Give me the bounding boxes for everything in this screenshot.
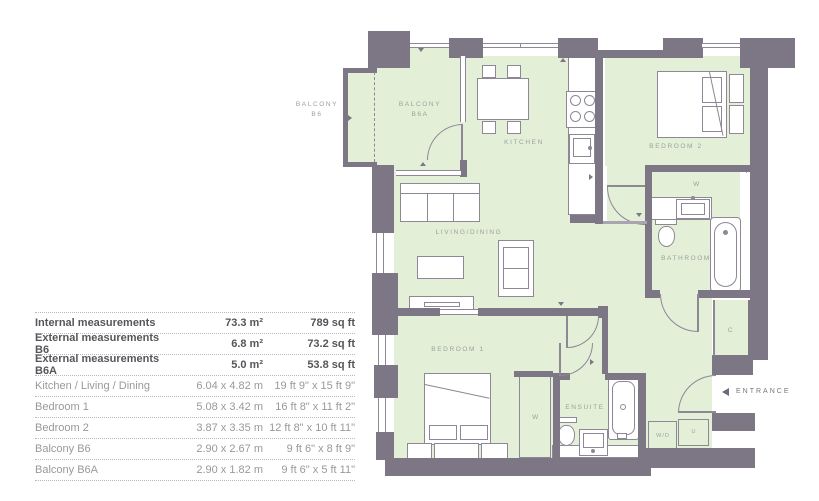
ensuite-toilet-bowl bbox=[558, 425, 575, 446]
kitchen-label: KITCHEN bbox=[504, 139, 544, 146]
bathroom-label: BATHROOM bbox=[661, 255, 711, 262]
marker-arrow bbox=[348, 115, 352, 121]
wall bbox=[374, 365, 398, 398]
wardrobe2-label: W bbox=[693, 181, 701, 188]
measurements-table: Internal measurements 73.3 m² 789 sq ft … bbox=[35, 312, 355, 481]
sofa bbox=[400, 183, 480, 222]
burner bbox=[570, 95, 581, 106]
marker-arrow bbox=[560, 58, 566, 62]
row-metric: 73.3 m² bbox=[171, 317, 263, 329]
row-metric: 2.90 x 1.82 m bbox=[171, 464, 263, 476]
wall bbox=[558, 38, 598, 58]
closet-label: C bbox=[728, 327, 734, 334]
marker-arrow bbox=[636, 213, 642, 217]
floorplan-page: BALCONY B6 BALCONY B6A KITCHEN BEDROOM 2… bbox=[0, 0, 819, 501]
window bbox=[410, 43, 449, 48]
row-imperial: 12 ft 8" x 10 ft 11" bbox=[263, 422, 355, 434]
wall bbox=[663, 38, 703, 58]
row-imperial: 19 ft 9" x 15 ft 9" bbox=[263, 380, 355, 392]
burner bbox=[584, 95, 595, 106]
balcony-wall bbox=[343, 68, 377, 73]
balcony-b6-label: BALCONY bbox=[296, 101, 338, 108]
utility-label: U bbox=[692, 429, 697, 435]
marker-arrow bbox=[590, 359, 594, 365]
wall bbox=[698, 290, 753, 298]
balcony-division-dashed-line bbox=[374, 72, 375, 162]
row-metric: 3.87 x 3.35 m bbox=[171, 422, 263, 434]
entrance-label: ENTRANCE bbox=[736, 388, 791, 395]
balcony-wall bbox=[343, 162, 377, 167]
row-label: External measurements B6A bbox=[35, 353, 171, 377]
wall bbox=[390, 308, 440, 316]
table-row: Balcony B6A 2.90 x 1.82 m 9 ft 6" x 5 ft… bbox=[35, 460, 355, 481]
sofa-cushion-line bbox=[453, 194, 454, 221]
ensuite-sink-basin bbox=[583, 433, 604, 448]
ensuite-tap bbox=[591, 449, 595, 453]
row-metric: 5.08 x 3.42 m bbox=[171, 401, 263, 413]
kitchen-tap bbox=[588, 146, 592, 150]
bed2-nightstand bbox=[729, 74, 744, 103]
wall bbox=[478, 308, 598, 316]
bedroom1-label: BEDROOM 1 bbox=[431, 346, 484, 353]
bedroom2-label: BEDROOM 2 bbox=[649, 143, 702, 150]
bed1-headboard bbox=[434, 443, 479, 459]
row-imperial: 9 ft 6" x 5 ft 11" bbox=[263, 464, 355, 476]
balcony-b6-label-2: B6 bbox=[311, 111, 322, 118]
wall bbox=[598, 50, 665, 58]
dining-table bbox=[477, 78, 529, 120]
table-row: Bedroom 1 5.08 x 3.42 m 16 ft 8" x 11 ft… bbox=[35, 397, 355, 418]
washer-dryer-label: W/D bbox=[656, 433, 670, 439]
row-label: Kitchen / Living / Dining bbox=[35, 380, 171, 392]
wall bbox=[645, 448, 755, 468]
wall bbox=[595, 56, 603, 224]
marker-arrow bbox=[418, 48, 424, 52]
marker-arrow bbox=[420, 162, 426, 166]
row-label: Bedroom 2 bbox=[35, 422, 171, 434]
sofa-cushion-line bbox=[427, 194, 428, 221]
row-imperial: 73.2 sq ft bbox=[263, 338, 355, 350]
table-row: External measurements B6A 5.0 m² 53.8 sq… bbox=[35, 355, 355, 376]
table-row: Balcony B6 2.90 x 2.67 m 9 ft 6" x 8 ft … bbox=[35, 439, 355, 460]
row-metric: 5.0 m² bbox=[171, 359, 263, 371]
table-row: Bedroom 2 3.87 x 3.35 m 12 ft 8" x 10 ft… bbox=[35, 418, 355, 439]
balcony-b6a-label-2: B6A bbox=[411, 111, 428, 118]
entrance-arrow-icon bbox=[722, 388, 729, 396]
wall bbox=[514, 371, 553, 377]
tv bbox=[424, 302, 460, 307]
window bbox=[378, 335, 386, 365]
bed1-nightstand bbox=[407, 443, 432, 459]
burner bbox=[570, 111, 581, 122]
bathroom-tap bbox=[691, 196, 695, 200]
row-metric: 2.90 x 2.67 m bbox=[171, 443, 263, 455]
burner bbox=[584, 111, 595, 122]
wall bbox=[372, 273, 398, 335]
wall bbox=[645, 290, 660, 298]
wall bbox=[748, 300, 768, 360]
row-imperial: 9 ft 6" x 8 ft 9" bbox=[263, 443, 355, 455]
dining-chair bbox=[507, 65, 521, 78]
bed1-pillow bbox=[429, 425, 457, 440]
row-imperial: 16 ft 8" x 11 ft 2" bbox=[263, 401, 355, 413]
wall bbox=[460, 160, 467, 177]
dining-chair bbox=[482, 121, 496, 134]
shower-step bbox=[617, 433, 627, 439]
wall bbox=[645, 165, 752, 172]
row-label: Bedroom 1 bbox=[35, 401, 171, 413]
wall bbox=[602, 316, 608, 374]
hall-floor bbox=[603, 224, 645, 296]
sofa-back-line bbox=[401, 193, 479, 194]
wall bbox=[712, 413, 755, 431]
wall bbox=[638, 373, 646, 460]
wall bbox=[449, 38, 483, 58]
marker-arrow bbox=[589, 174, 593, 180]
ensuite-label: ENSUITE bbox=[565, 404, 604, 411]
balcony-b6a-label: BALCONY bbox=[399, 101, 441, 108]
toilet-tank bbox=[655, 219, 677, 225]
row-metric: 6.8 m² bbox=[171, 338, 263, 350]
marker-arrow bbox=[743, 167, 747, 173]
window-mullion bbox=[520, 43, 521, 48]
row-label: Balcony B6 bbox=[35, 443, 171, 455]
wall bbox=[385, 458, 651, 476]
bed1-pillow bbox=[460, 425, 488, 440]
dining-chair bbox=[482, 65, 496, 78]
wall bbox=[368, 31, 410, 68]
internal-window bbox=[440, 309, 478, 315]
table-row: Kitchen / Living / Dining 6.04 x 4.82 m … bbox=[35, 376, 355, 397]
toilet-bowl bbox=[658, 226, 675, 247]
wall bbox=[645, 165, 652, 296]
window bbox=[396, 170, 461, 176]
window bbox=[702, 43, 740, 48]
wall bbox=[553, 380, 560, 460]
marker-arrow bbox=[558, 302, 564, 306]
dining-chair bbox=[507, 121, 521, 134]
shower-drain bbox=[620, 404, 626, 410]
bathroom-sink-basin bbox=[681, 203, 705, 215]
bathtub-drain bbox=[723, 230, 728, 235]
table-row: External measurements B6 6.8 m² 73.2 sq … bbox=[35, 334, 355, 355]
wall bbox=[570, 215, 603, 223]
living-dining-label: LIVING/DINING bbox=[436, 229, 503, 236]
row-metric: 6.04 x 4.82 m bbox=[171, 380, 263, 392]
bed2-nightstand bbox=[729, 105, 744, 134]
table-row: Internal measurements 73.3 m² 789 sq ft bbox=[35, 313, 355, 334]
door-threshold bbox=[603, 221, 647, 224]
closet-door-line bbox=[713, 300, 715, 356]
wall bbox=[605, 373, 640, 380]
wall bbox=[376, 432, 394, 460]
row-label: Internal measurements bbox=[35, 317, 171, 329]
row-label: Balcony B6A bbox=[35, 464, 171, 476]
wardrobe1-label: W bbox=[532, 414, 540, 421]
bed1-nightstand bbox=[481, 443, 508, 459]
coffee-table bbox=[417, 256, 464, 279]
row-imperial: 789 sq ft bbox=[263, 317, 355, 329]
row-imperial: 53.8 sq ft bbox=[263, 359, 355, 371]
window bbox=[376, 233, 384, 273]
marker-arrow bbox=[685, 50, 691, 54]
wall bbox=[372, 165, 394, 233]
window bbox=[378, 398, 386, 432]
wall bbox=[750, 58, 768, 304]
balcony-glazing bbox=[460, 56, 466, 122]
armchair-line bbox=[504, 268, 528, 269]
wall bbox=[712, 355, 753, 375]
